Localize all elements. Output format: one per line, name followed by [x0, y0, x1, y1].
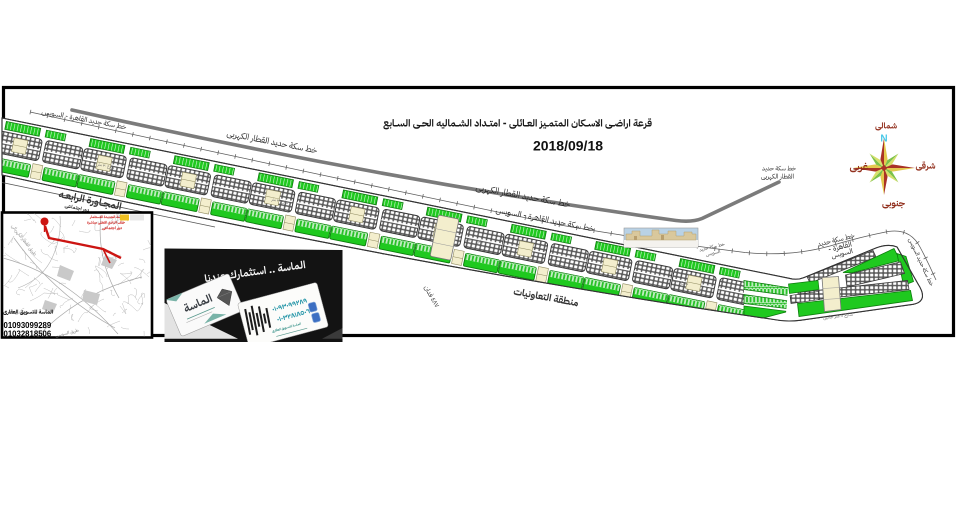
- svg-text:01032818506: 01032818506: [4, 330, 52, 339]
- svg-text:N: N: [880, 134, 887, 145]
- svg-text:2018/09/18: 2018/09/18: [533, 138, 603, 154]
